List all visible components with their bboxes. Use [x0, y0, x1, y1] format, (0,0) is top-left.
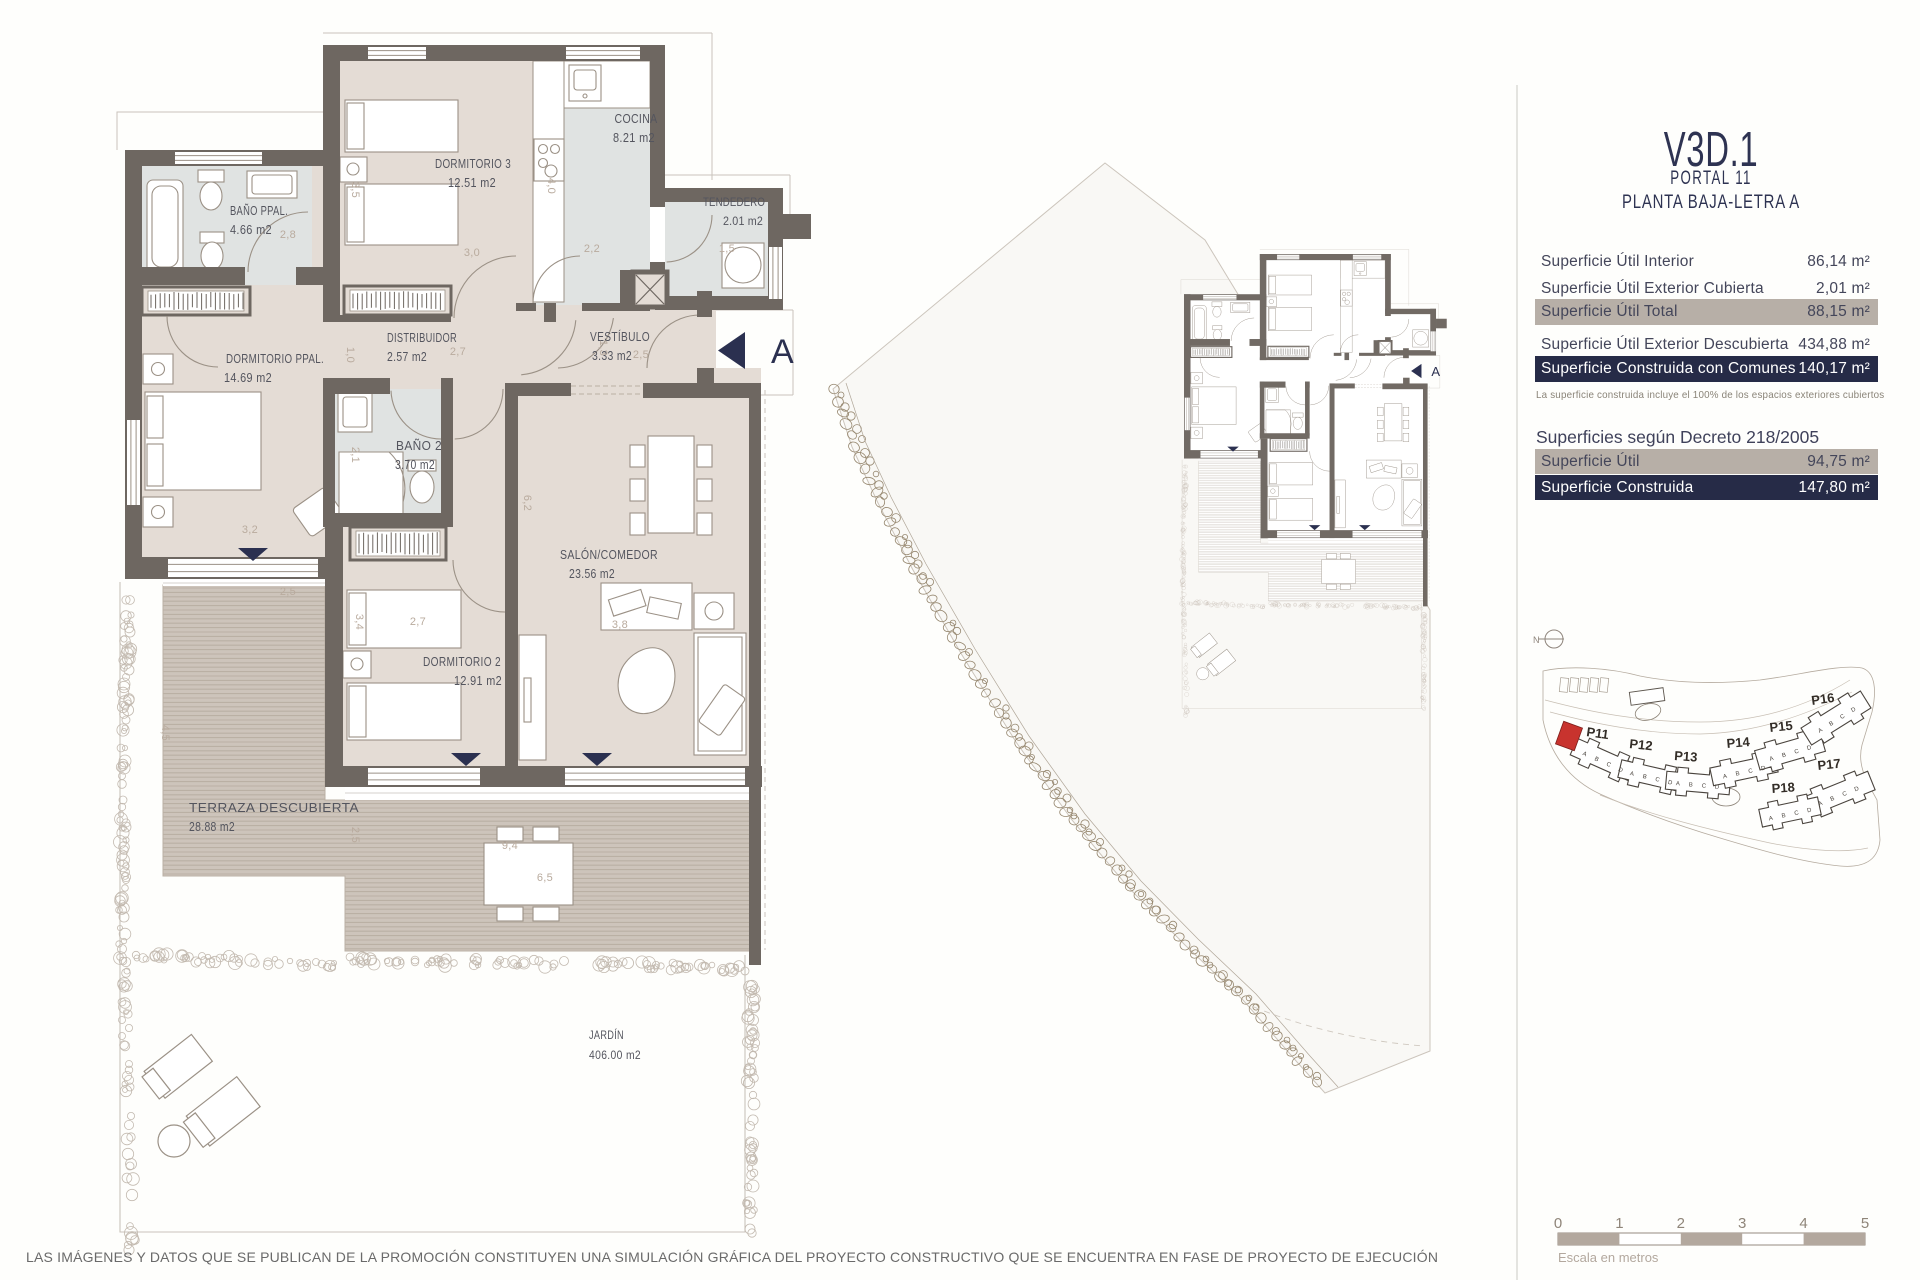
svg-text:2,5: 2,5: [349, 827, 361, 843]
svg-text:4,0: 4,0: [545, 178, 557, 194]
svg-text:3: 3: [1738, 1215, 1746, 1232]
svg-text:6,5: 6,5: [537, 872, 553, 884]
svg-text:3.70 m2: 3.70 m2: [395, 458, 435, 472]
svg-text:BAÑO PPAL.: BAÑO PPAL.: [230, 204, 288, 218]
svg-text:LAS IMÁGENES Y DATOS QUE SE PU: LAS IMÁGENES Y DATOS QUE SE PUBLICAN DE …: [26, 1249, 1438, 1265]
svg-text:COCINA: COCINA: [615, 112, 658, 126]
svg-text:2.01 m2: 2.01 m2: [723, 214, 763, 228]
svg-text:406.00 m2: 406.00 m2: [589, 1050, 641, 1062]
svg-text:TENDEDERO: TENDEDERO: [703, 195, 765, 209]
svg-text:1,0: 1,0: [344, 347, 356, 363]
svg-text:JARDÍN: JARDÍN: [589, 1029, 624, 1042]
svg-text:3,8: 3,8: [612, 619, 628, 631]
svg-text:DORMITORIO 3: DORMITORIO 3: [435, 157, 511, 171]
svg-text:2,2: 2,2: [584, 243, 600, 255]
svg-text:12.91 m2: 12.91 m2: [454, 674, 502, 688]
svg-text:28.88 m2: 28.88 m2: [189, 820, 235, 834]
svg-text:3,2: 3,2: [242, 524, 258, 536]
svg-text:0: 0: [1554, 1215, 1562, 1232]
svg-text:23.56 m2: 23.56 m2: [569, 567, 615, 581]
svg-text:N: N: [1533, 635, 1540, 645]
svg-text:P13: P13: [1674, 748, 1698, 765]
svg-text:14.69 m2: 14.69 m2: [224, 371, 272, 385]
svg-text:P15: P15: [1769, 718, 1794, 735]
svg-text:P16: P16: [1810, 690, 1835, 708]
svg-text:1,5: 1,5: [719, 243, 735, 255]
svg-text:3,0: 3,0: [464, 247, 480, 259]
svg-text:4: 4: [1799, 1215, 1807, 1232]
svg-text:DISTRIBUIDOR: DISTRIBUIDOR: [387, 331, 457, 345]
svg-text:2,5: 2,5: [633, 349, 649, 361]
svg-text:DORMITORIO PPAL.: DORMITORIO PPAL.: [226, 352, 324, 366]
svg-text:2,5: 2,5: [280, 586, 296, 598]
svg-text:3,4: 3,4: [353, 614, 365, 630]
svg-text:B: B: [1689, 782, 1694, 788]
svg-text:3,5: 3,5: [349, 182, 361, 198]
svg-text:P12: P12: [1629, 736, 1654, 753]
svg-text:P18: P18: [1771, 779, 1795, 796]
svg-text:P14: P14: [1726, 734, 1751, 751]
svg-text:DORMITORIO 2: DORMITORIO 2: [423, 655, 501, 669]
svg-text:4.66 m2: 4.66 m2: [230, 223, 272, 237]
svg-text:1,3: 1,3: [597, 340, 609, 356]
svg-text:2,8: 2,8: [280, 229, 296, 241]
svg-text:Escala en metros: Escala en metros: [1558, 1250, 1659, 1265]
svg-text:A: A: [1676, 781, 1681, 787]
svg-text:4,5: 4,5: [159, 725, 171, 741]
svg-text:P11: P11: [1586, 724, 1610, 742]
svg-text:1: 1: [1615, 1215, 1623, 1232]
svg-text:BAÑO 2: BAÑO 2: [396, 439, 442, 453]
svg-text:P17: P17: [1817, 756, 1842, 773]
svg-text:12.51 m2: 12.51 m2: [448, 176, 496, 190]
svg-text:2,7: 2,7: [410, 616, 426, 628]
svg-text:TERRAZA DESCUBIERTA: TERRAZA DESCUBIERTA: [189, 801, 359, 815]
svg-text:SALÓN/COMEDOR: SALÓN/COMEDOR: [560, 547, 658, 562]
svg-text:2,1: 2,1: [349, 447, 361, 463]
svg-text:8.21 m2: 8.21 m2: [613, 131, 655, 145]
svg-text:9,4: 9,4: [502, 840, 518, 852]
svg-text:5: 5: [1861, 1215, 1869, 1232]
svg-text:2.57 m2: 2.57 m2: [387, 350, 427, 364]
svg-text:2,7: 2,7: [450, 346, 466, 358]
svg-text:6,2: 6,2: [521, 495, 533, 511]
svg-text:2: 2: [1677, 1215, 1685, 1232]
